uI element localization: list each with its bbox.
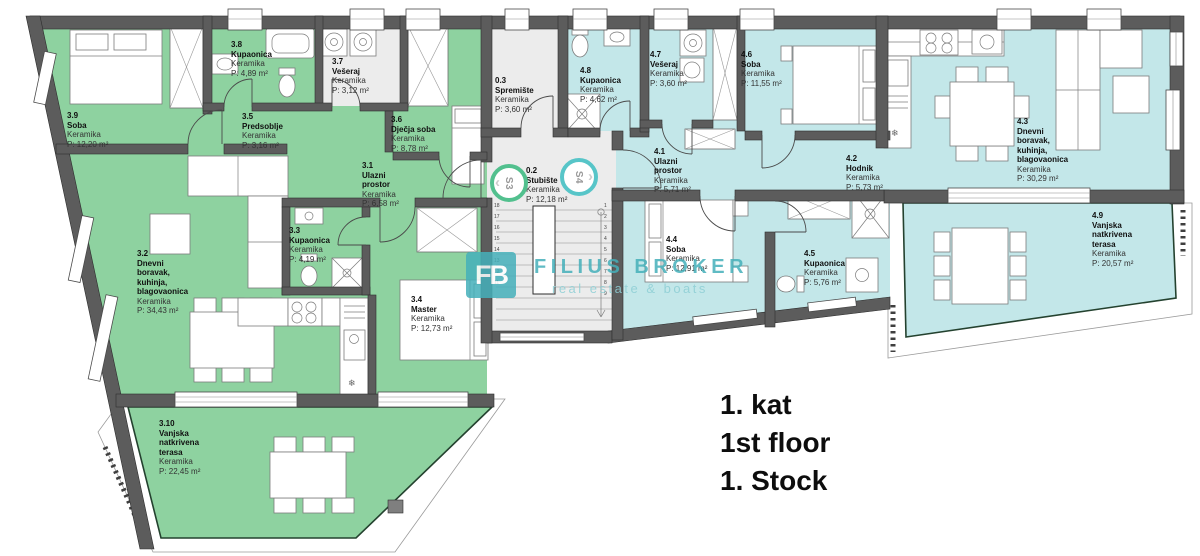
wardrobe-3-6-icon <box>408 26 448 106</box>
room-label-0-3: 0.3SpremišteKeramikaP: 3,60 m² <box>495 76 553 114</box>
toilet-4-5-icon <box>777 276 804 292</box>
stair-marker-s3: ‹ S3 <box>490 164 528 202</box>
room-label-3-6: 3.6Dječja sobaKeramikaP: 8,78 m² <box>391 115 461 153</box>
wardrobe-4-1-icon <box>685 129 735 149</box>
room-label-4-6: 4.6SobaKeramikaP: 11,55 m² <box>741 50 803 88</box>
fridge-snowflake-icon: ❄ <box>891 128 899 138</box>
room-label-4-1: 4.1Ulazni prostorKeramikaP: 5,71 m² <box>654 147 700 195</box>
terrace-table-4-9-icon <box>934 228 1026 304</box>
room-label-4-5: 4.5KupaonicaKeramikaP: 5,76 m² <box>804 249 868 287</box>
room-label-3-3: 3.3KupaonicaKeramikaP: 4,19 m² <box>289 226 353 264</box>
room-label-3-10: 3.10Vanjska natkrivena terasaKeramikaP: … <box>159 419 215 476</box>
wardrobe-4-6-icon <box>713 26 737 120</box>
closet-3-4-icon <box>417 208 477 252</box>
bed-3-9-icon <box>70 30 162 104</box>
floor-title-croatian: 1. kat <box>720 386 830 424</box>
floor-title-english: 1st floor <box>720 424 830 462</box>
chevron-right-icon: › <box>588 168 593 186</box>
watermark-brand: FILIUS BROKER <box>534 256 748 279</box>
room-label-4-7: 4.7VešerajKeramikaP: 3,60 m² <box>650 50 710 88</box>
room-label-3-7: 3.7VešerajKeramikaP: 3,12 m² <box>332 57 396 95</box>
room-label-4-9: 4.9Vanjska natkrivena terasaKeramikaP: 2… <box>1092 211 1148 268</box>
filius-broker-logo: FB <box>466 252 516 298</box>
room-label-4-3: 4.3Dnevni boravak, kuhinja, blagovaonica… <box>1017 117 1071 184</box>
sink-3-3-icon <box>295 208 323 224</box>
room-label-3-9: 3.9SobaKeramikaP: 12,20 m² <box>67 111 137 149</box>
room-label-3-1: 3.1Ulazni prostorKeramikaP: 6,58 m² <box>362 161 408 209</box>
floor-title-german: 1. Stock <box>720 462 830 500</box>
floor-plan-page: ❄ <box>0 0 1200 556</box>
room-label-3-4: 3.4MasterKeramikaP: 12,73 m² <box>411 295 475 333</box>
wardrobe-3-9-icon <box>170 26 203 108</box>
fridge-snowflake-icon: ❄ <box>348 378 356 388</box>
sink-4-8-icon <box>604 28 630 46</box>
floor-title: 1. kat 1st floor 1. Stock <box>720 386 830 500</box>
chevron-left-icon: ‹ <box>495 174 500 192</box>
room-label-3-2: 3.2Dnevni boravak, kuhinja, blagovaonica… <box>137 249 191 316</box>
toilet-4-8-icon <box>572 28 588 57</box>
terrace-post <box>388 500 403 513</box>
room-label-4-8: 4.8KupaonicaKeramikaP: 4,62 m² <box>580 66 642 104</box>
room-label-3-8: 3.8KupaonicaKeramikaP: 4,89 m² <box>231 40 301 78</box>
terrace-table-3-10-icon <box>270 437 354 513</box>
stair-marker-s4: S4 › <box>560 158 598 196</box>
room-label-3-5: 3.5PredsobljeKeramikaP: 3,16 m² <box>242 112 308 150</box>
watermark-tagline: real estate & boats <box>552 281 708 296</box>
room-label-4-2: 4.2HodnikKeramikaP: 5,73 m² <box>846 154 902 192</box>
coffee-table-4-3-icon <box>1113 76 1149 113</box>
side-table-3-2-icon <box>150 214 190 254</box>
